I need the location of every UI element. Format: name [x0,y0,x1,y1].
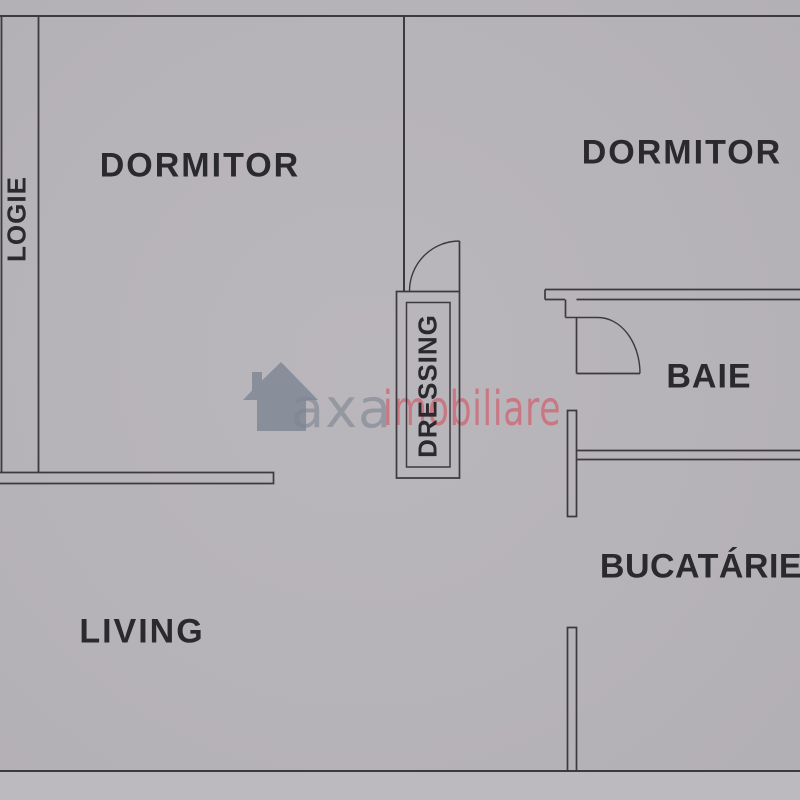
room-label-living: LIVING [79,613,204,652]
dressing-door-arc [410,241,460,291]
room-label-logie: LOGIE [2,176,33,262]
room-label-dormitor-left: DORMITOR [100,147,300,186]
room-label-dormitor-right: DORMITOR [582,134,782,173]
room-label-bucatarie: BUCATÁRIE [600,548,800,587]
kitchen-wall-upper [568,411,577,517]
living-divider-wall [0,473,274,484]
baie-door-arc [598,318,640,374]
kitchen-wall-lower [568,628,577,772]
room-label-baie: BAIE [666,358,751,397]
floorplan: axa imobiliare [0,0,800,800]
room-label-dressing: DRESSING [413,314,444,458]
floorplan-walls [0,0,800,800]
